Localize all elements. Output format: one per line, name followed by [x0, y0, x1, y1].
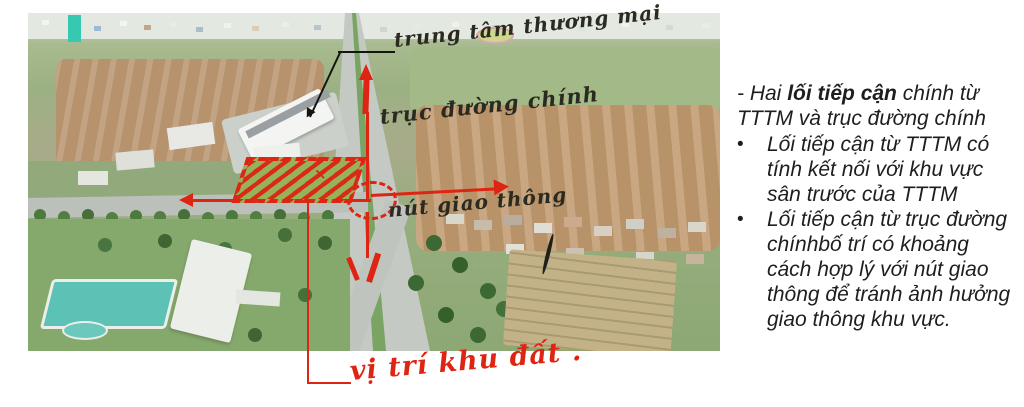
warehouse-building-b [115, 149, 154, 170]
notes-intro: - Hai lối tiếp cận chính từ TTTM và trục… [737, 82, 1019, 132]
water-tower [68, 15, 81, 42]
bullet-item: • Lối tiếp cận từ TTTM có tính kết nối v… [737, 133, 1019, 208]
up-arrow-shaft-bold [362, 78, 369, 114]
intro-bold-phrase: lối tiếp cận [787, 82, 897, 105]
site-hatch-rectangle [232, 157, 367, 203]
swimming-pool [40, 279, 178, 329]
kiddie-pool [62, 321, 108, 340]
village-trees [426, 235, 442, 251]
leader-line-horizontal [338, 51, 395, 53]
bullet-text: Lối tiếp cận từ trục đường chínhbố trí c… [767, 208, 1019, 333]
bullet-item: • Lối tiếp cận từ trục đường chínhbố trí… [737, 208, 1019, 333]
left-arrowhead-icon [179, 193, 193, 207]
site-leader-vertical [307, 201, 309, 384]
resort-trees [278, 228, 292, 242]
resort-clubhouse-wing [236, 289, 281, 306]
bullet-icon: • [737, 208, 767, 232]
site-leader-horizontal [307, 382, 351, 384]
notes-panel: - Hai lối tiếp cận chính từ TTTM và trục… [737, 82, 1019, 333]
warehouse-building-c [78, 171, 108, 185]
rice-paddy-field [503, 249, 677, 351]
construction-dirt-right [416, 105, 720, 251]
site-center-marker: × [314, 165, 327, 183]
bullet-text: Lối tiếp cận từ TTTM có tính kết nối với… [767, 133, 1019, 208]
distant-city-buildings [42, 20, 49, 25]
intro-prefix: - Hai [737, 82, 787, 105]
bullet-icon: • [737, 133, 767, 157]
